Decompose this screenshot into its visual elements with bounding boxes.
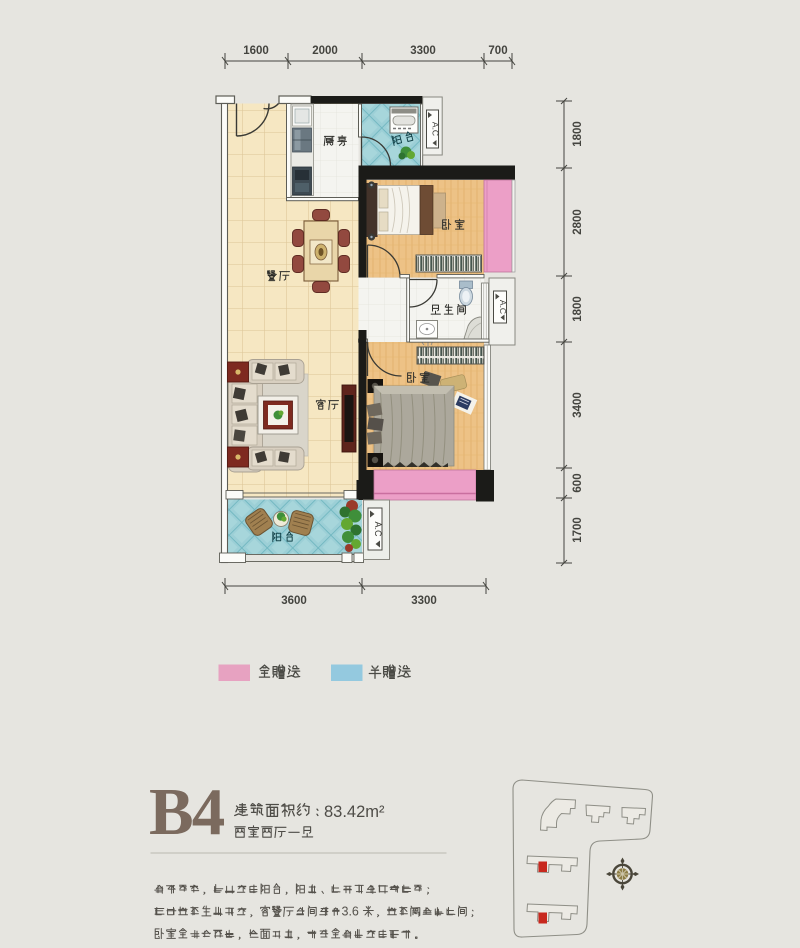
svg-text:3600: 3600: [281, 595, 307, 607]
svg-text:2000: 2000: [312, 45, 338, 57]
svg-text:1600: 1600: [243, 45, 269, 57]
svg-text:3.6: 3.6: [342, 905, 359, 919]
svg-text:700: 700: [488, 45, 507, 57]
svg-text:83.42m²: 83.42m²: [324, 803, 385, 821]
svg-text:1800: 1800: [572, 121, 584, 147]
svg-text:B4: B4: [149, 775, 225, 849]
svg-text:3300: 3300: [410, 45, 436, 57]
svg-text:3400: 3400: [572, 392, 584, 418]
svg-text:1800: 1800: [572, 296, 584, 322]
svg-text:A.C: A.C: [373, 521, 383, 537]
svg-text:A.C: A.C: [498, 300, 508, 314]
svg-text:2800: 2800: [572, 209, 584, 235]
svg-text:600: 600: [572, 473, 584, 492]
svg-text:1700: 1700: [572, 517, 584, 543]
svg-text:A.C: A.C: [431, 122, 441, 136]
svg-text:3300: 3300: [411, 595, 437, 607]
